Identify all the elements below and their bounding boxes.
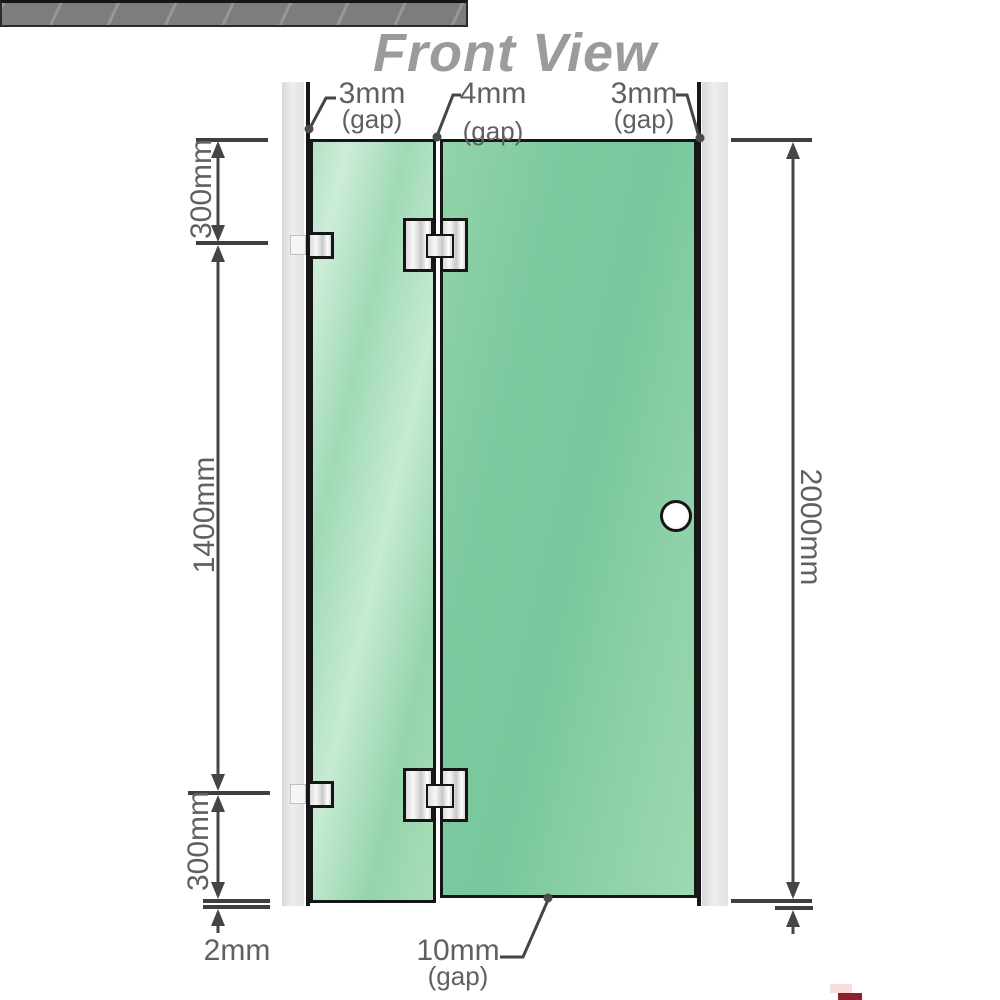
dimension-lines-svg [0, 0, 1000, 1000]
gap-value: 3mm [327, 80, 417, 107]
gap-qualifier: (gap) [327, 107, 417, 131]
dim-arrow-icon [786, 882, 800, 899]
gap-qualifier: (gap) [448, 119, 538, 143]
corner-watermark-pink [830, 984, 852, 993]
dimension-label-bottom-300mm: 300mm [184, 781, 214, 901]
gap-label-middle: 4mm (gap) [448, 80, 538, 143]
dim-arrow-icon [786, 142, 800, 159]
dim-arrow-icon [211, 909, 225, 926]
gap-value: 4mm [448, 80, 538, 107]
gap-label-right: 3mm (gap) [599, 80, 689, 131]
dim-arrow-icon [786, 910, 800, 927]
gap-value: 3mm [599, 80, 689, 107]
gap-leader-lines [305, 95, 705, 957]
dimension-label-middle-1400mm: 1400mm [190, 445, 220, 585]
dimension-label-total-2000mm: 2000mm [795, 447, 825, 607]
floor-gap-label-2mm: 2mm [198, 937, 276, 964]
door-floor-gap-label: 10mm (gap) [413, 937, 503, 988]
gap-value: 10mm [413, 937, 503, 964]
dimension-label-top-300mm: 300mm [187, 129, 217, 249]
gap-label-left: 3mm (gap) [327, 80, 417, 131]
front-view-diagram: Front View [0, 0, 1000, 1000]
gap-qualifier: (gap) [413, 964, 503, 988]
corner-watermark-red [838, 993, 862, 1000]
gap-qualifier: (gap) [599, 107, 689, 131]
